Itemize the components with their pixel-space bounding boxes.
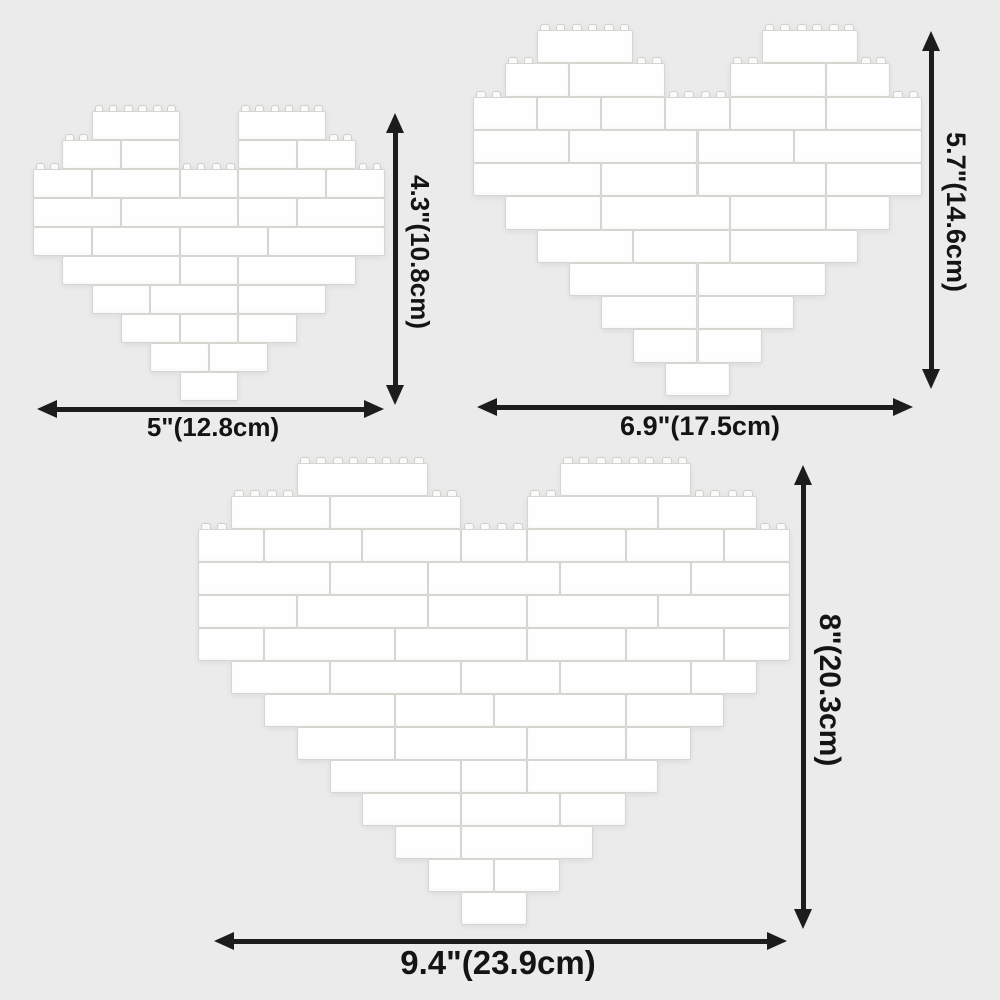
brick xyxy=(180,227,268,256)
brick xyxy=(428,859,494,892)
brick xyxy=(297,140,356,169)
arrow-right-icon xyxy=(364,400,384,418)
brick-heart-small-bricks xyxy=(33,111,385,401)
brick xyxy=(626,727,692,760)
arrow-right-icon xyxy=(893,398,913,416)
brick xyxy=(297,198,385,227)
brick xyxy=(826,163,922,196)
arrow-right-icon xyxy=(767,932,787,950)
brick xyxy=(330,760,462,793)
brick xyxy=(560,661,692,694)
brick xyxy=(560,793,626,826)
brick xyxy=(121,198,238,227)
brick xyxy=(62,140,121,169)
brick xyxy=(62,256,179,285)
brick xyxy=(238,285,326,314)
brick xyxy=(698,163,826,196)
brick xyxy=(150,343,209,372)
brick xyxy=(326,169,385,198)
brick xyxy=(395,826,461,859)
brick xyxy=(658,595,790,628)
brick xyxy=(762,30,858,63)
brick xyxy=(428,562,560,595)
arrow-down-icon xyxy=(922,369,940,389)
brick xyxy=(665,97,729,130)
brick xyxy=(691,562,790,595)
brick xyxy=(92,285,151,314)
brick xyxy=(238,256,355,285)
brick xyxy=(461,760,527,793)
brick xyxy=(461,793,560,826)
brick xyxy=(569,63,665,96)
brick xyxy=(730,230,858,263)
brick xyxy=(264,694,396,727)
brick xyxy=(238,169,326,198)
brick xyxy=(601,163,697,196)
brick xyxy=(180,372,239,401)
brick xyxy=(473,97,537,130)
brick xyxy=(198,562,330,595)
arrow-line xyxy=(490,405,900,410)
brick xyxy=(826,196,890,229)
brick xyxy=(633,230,729,263)
brick xyxy=(121,140,180,169)
brick xyxy=(180,256,239,285)
small-height-dimension-label: 4.3"(10.8cm) xyxy=(404,175,435,329)
brick xyxy=(730,97,826,130)
brick xyxy=(238,198,297,227)
brick xyxy=(665,363,729,396)
brick xyxy=(180,314,239,343)
brick xyxy=(826,97,922,130)
brick xyxy=(268,227,385,256)
brick xyxy=(297,595,429,628)
brick xyxy=(33,198,121,227)
brick xyxy=(92,169,180,198)
brick xyxy=(527,496,659,529)
brick xyxy=(209,343,268,372)
arrow-line xyxy=(929,44,934,376)
arrow-line xyxy=(393,126,398,392)
brick xyxy=(92,227,180,256)
brick xyxy=(238,314,297,343)
brick xyxy=(473,163,601,196)
brick xyxy=(330,661,462,694)
brick xyxy=(527,760,659,793)
brick xyxy=(231,496,330,529)
brick xyxy=(527,727,626,760)
brick xyxy=(264,529,363,562)
brick xyxy=(330,496,462,529)
arrow-down-icon xyxy=(794,909,812,929)
brick xyxy=(560,562,692,595)
brick xyxy=(198,595,297,628)
brick xyxy=(461,529,527,562)
brick xyxy=(395,694,494,727)
brick xyxy=(362,793,461,826)
brick xyxy=(33,169,92,198)
brick xyxy=(826,63,890,96)
brick xyxy=(569,263,697,296)
brick xyxy=(658,496,757,529)
brick xyxy=(395,727,527,760)
large-height-dimension-label: 8"(20.3cm) xyxy=(812,614,846,767)
brick xyxy=(505,196,601,229)
brick xyxy=(691,661,757,694)
brick xyxy=(527,595,659,628)
brick xyxy=(238,140,297,169)
brick xyxy=(698,263,826,296)
brick xyxy=(537,230,633,263)
brick xyxy=(121,314,180,343)
brick xyxy=(494,694,626,727)
arrow-line xyxy=(50,407,371,412)
brick xyxy=(198,529,264,562)
brick-heart-large-bricks xyxy=(198,463,790,925)
brick xyxy=(461,661,560,694)
brick xyxy=(297,463,429,496)
brick xyxy=(473,130,569,163)
brick xyxy=(626,529,725,562)
brick xyxy=(537,30,633,63)
brick xyxy=(633,329,697,362)
brick xyxy=(461,826,593,859)
product-dimension-image: 4.3"(10.8cm) 5"(12.8cm) 5.7"(14.6cm) 6.9… xyxy=(0,0,1000,1000)
brick xyxy=(724,628,790,661)
brick xyxy=(92,111,180,140)
brick xyxy=(150,285,238,314)
brick xyxy=(601,296,697,329)
small-width-dimension-label: 5"(12.8cm) xyxy=(147,412,279,443)
brick xyxy=(601,196,729,229)
brick xyxy=(537,97,601,130)
medium-width-dimension-label: 6.9"(17.5cm) xyxy=(620,411,780,442)
brick xyxy=(527,529,626,562)
brick xyxy=(428,595,527,628)
brick xyxy=(698,296,794,329)
arrow-down-icon xyxy=(386,385,404,405)
brick xyxy=(395,628,527,661)
brick xyxy=(198,628,264,661)
brick xyxy=(626,694,725,727)
brick xyxy=(180,169,239,198)
arrow-line xyxy=(801,478,806,916)
brick xyxy=(461,892,527,925)
brick xyxy=(569,130,697,163)
medium-height-dimension-label: 5.7"(14.6cm) xyxy=(940,132,971,292)
brick xyxy=(231,661,330,694)
brick xyxy=(330,562,429,595)
brick xyxy=(730,63,826,96)
brick xyxy=(33,227,92,256)
brick xyxy=(494,859,560,892)
large-width-dimension-label: 9.4"(23.9cm) xyxy=(400,944,595,982)
brick xyxy=(527,628,626,661)
arrow-line xyxy=(227,939,774,944)
brick xyxy=(297,727,396,760)
brick xyxy=(505,63,569,96)
brick xyxy=(794,130,922,163)
brick xyxy=(238,111,326,140)
brick xyxy=(601,97,665,130)
brick xyxy=(362,529,461,562)
brick xyxy=(698,329,762,362)
brick-heart-medium-bricks xyxy=(473,30,922,396)
brick xyxy=(698,130,794,163)
brick xyxy=(264,628,396,661)
brick xyxy=(626,628,725,661)
brick xyxy=(730,196,826,229)
brick xyxy=(724,529,790,562)
brick xyxy=(560,463,692,496)
